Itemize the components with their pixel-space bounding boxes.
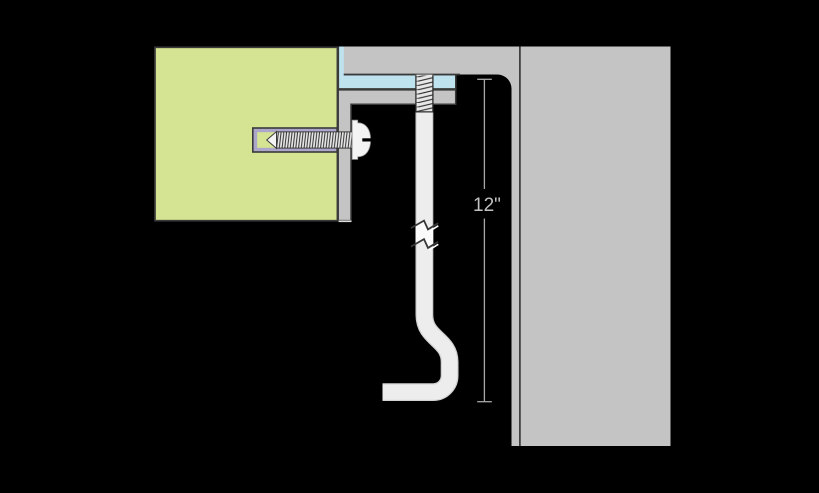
svg-text:12": 12" bbox=[473, 195, 501, 216]
